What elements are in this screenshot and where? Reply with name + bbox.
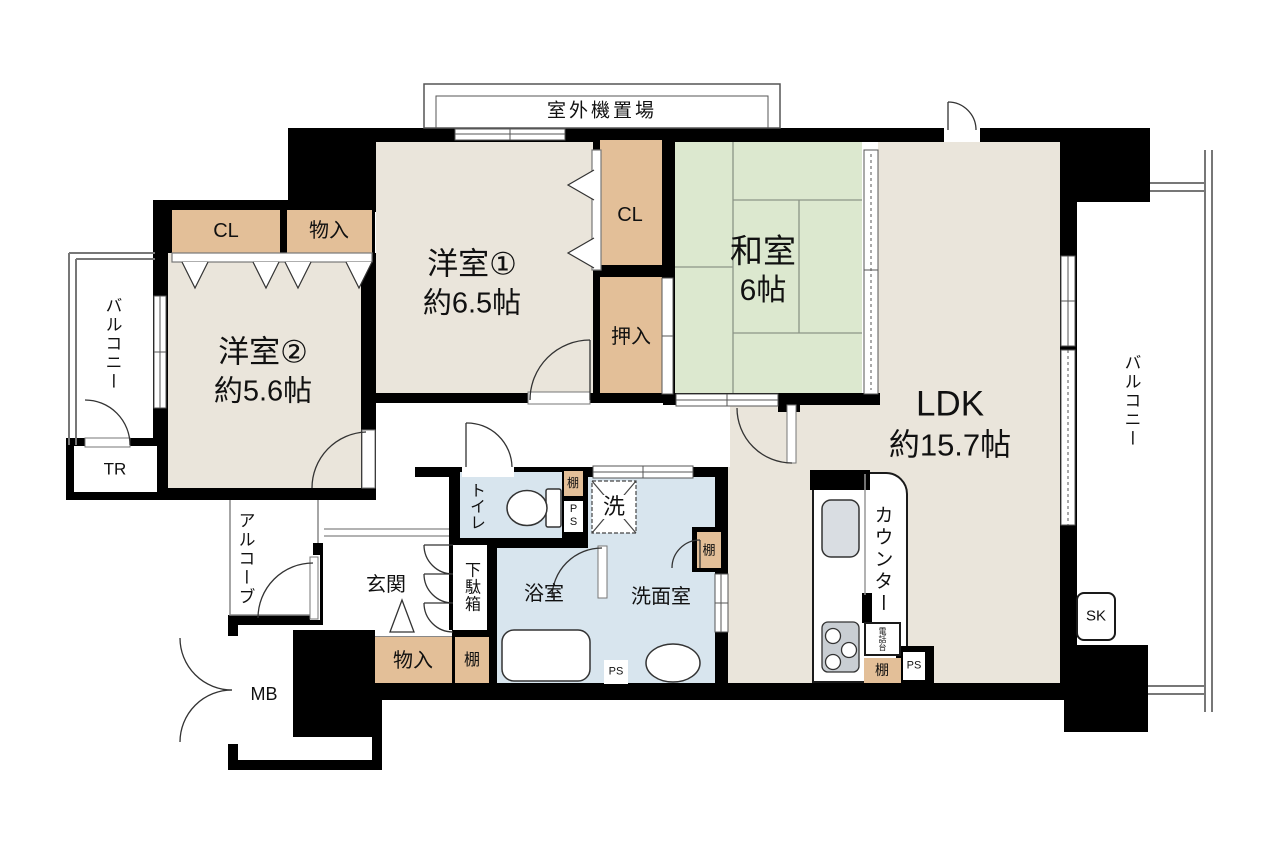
toilet-label: トイレ [467, 482, 483, 530]
outdoor-unit-label: 室外機置場 [547, 102, 657, 121]
monoiri-bottom-label: 物入 [393, 651, 433, 671]
tana-bottom-label: 棚 [464, 653, 480, 669]
balcony-left-label: バルコニー [104, 297, 121, 392]
room2-size: 約5.6帖 [214, 378, 312, 407]
washroom-label: 洗面室 [631, 587, 691, 607]
sk-label: SK [1086, 609, 1106, 624]
mb-label: MB [251, 685, 278, 703]
balcony-right-label: バルコニー [1123, 354, 1140, 449]
tana-washroom-label: 棚 [702, 544, 715, 557]
wash-basin [646, 644, 700, 682]
washitsu-name: 和室 [730, 235, 796, 268]
tana-mini-label: 棚 [567, 477, 579, 489]
genkan-label: 玄関 [366, 575, 406, 595]
getabako-label: 下駄箱 [462, 562, 478, 613]
tr-label: TR [104, 461, 127, 478]
floorplan-linework [0, 0, 1280, 850]
ps-kitchen-label: PS [907, 661, 922, 672]
cl-left-label: CL [213, 221, 239, 241]
tana-kitchen-label: 棚 [875, 663, 889, 677]
room2-name: 洋室② [218, 337, 308, 368]
room1-name: 洋室① [427, 249, 517, 280]
washitsu-size: 6帖 [740, 276, 787, 306]
bathtub [502, 630, 590, 681]
cl-center-label: CL [617, 205, 643, 225]
ps-mini-label: PS [568, 503, 579, 529]
step-triangle [390, 600, 414, 632]
washer-label: 洗 [601, 495, 627, 519]
counter-label: カウンター [873, 505, 892, 615]
room1-size: 約6.5帖 [423, 290, 521, 319]
kitchen-sink [822, 500, 859, 557]
toilet-fixture [507, 489, 561, 527]
denwadai-label: 電話台 [878, 627, 886, 651]
stove [822, 622, 859, 672]
ps-bath-label: PS [609, 667, 624, 678]
ldk-name: LDK [916, 387, 984, 422]
ldk-size: 約15.7帖 [889, 430, 1011, 461]
folding-door [172, 150, 601, 288]
bathroom-label: 浴室 [524, 584, 564, 604]
monoiri-top-label: 物入 [309, 221, 349, 241]
genkan-step [324, 529, 449, 536]
floor-plan: 室外機置場 洋室① 約6.5帖 洋室② 約5.6帖 和室 6帖 LDK 約15.… [0, 0, 1280, 850]
oshiire-label: 押入 [611, 327, 651, 347]
alcove-label: アルコーブ [237, 512, 254, 607]
balcony-rail-right [1148, 150, 1212, 712]
